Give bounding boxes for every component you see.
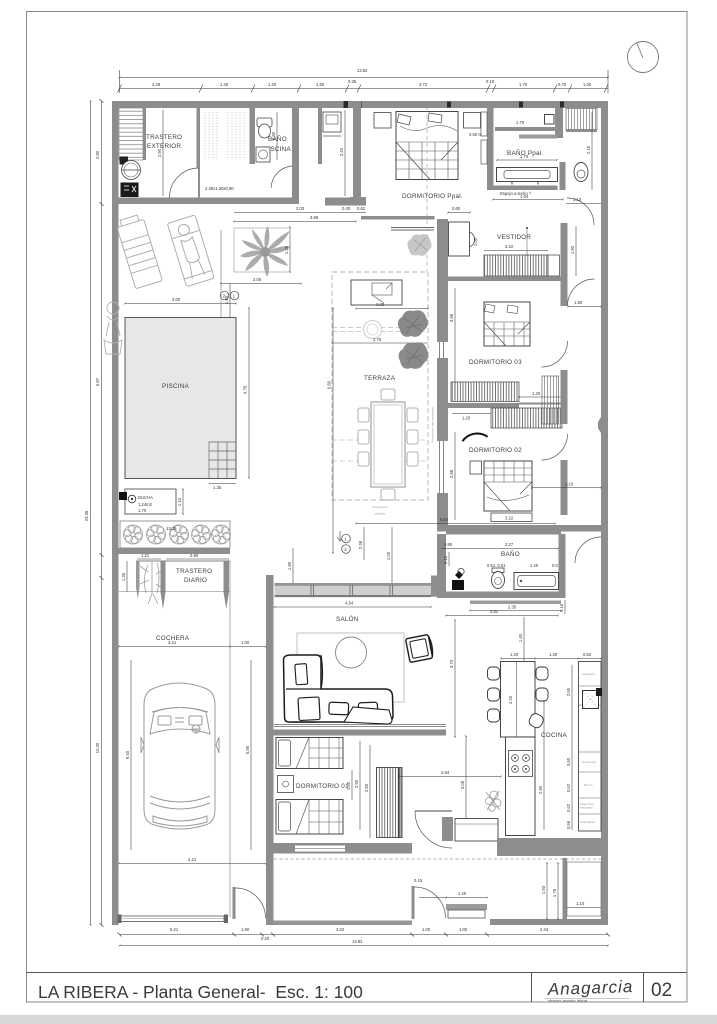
- svg-text:1.20: 1.20: [530, 563, 539, 568]
- svg-text:0.12: 0.12: [443, 555, 448, 564]
- svg-text:2.90: 2.90: [95, 150, 100, 159]
- svg-text:1.70: 1.70: [520, 154, 529, 159]
- svg-text:Despensa: Despensa: [582, 760, 596, 764]
- svg-text:BAÑO: BAÑO: [501, 549, 520, 558]
- svg-text:1.20: 1.20: [458, 891, 467, 896]
- svg-text:1.40: 1.40: [220, 82, 229, 87]
- svg-text:13.92: 13.92: [352, 939, 363, 944]
- svg-text:1.90: 1.90: [224, 295, 229, 304]
- svg-text:2.94: 2.94: [441, 770, 450, 775]
- svg-text:2.88: 2.88: [449, 469, 454, 478]
- svg-text:1.00: 1.00: [459, 927, 468, 932]
- svg-text:0,56: 0,56: [566, 820, 571, 829]
- svg-text:1.40: 1.40: [518, 633, 523, 642]
- svg-text:DUCHA: DUCHA: [138, 495, 153, 500]
- svg-text:integrado: integrado: [580, 806, 593, 810]
- svg-text:1.90: 1.90: [241, 927, 250, 932]
- svg-text:2.40: 2.40: [339, 147, 344, 156]
- svg-text:1.80: 1.80: [574, 300, 583, 305]
- svg-text:0.70: 0.70: [558, 82, 567, 87]
- svg-text:1.90: 1.90: [570, 245, 575, 254]
- svg-text:COCINA: COCINA: [541, 732, 568, 739]
- svg-text:1.35: 1.35: [213, 485, 222, 490]
- svg-text:6.87: 6.87: [95, 377, 100, 386]
- svg-text:SALÓN: SALÓN: [336, 614, 359, 623]
- svg-text:5.21: 5.21: [170, 927, 179, 932]
- svg-text:4,54: 4,54: [345, 601, 354, 606]
- svg-text:2.05: 2.05: [253, 277, 262, 282]
- svg-text:DORMITORIO 01: DORMITORIO 01: [296, 783, 349, 790]
- svg-text:Proyección: Proyección: [372, 505, 388, 509]
- svg-text:2.29: 2.29: [152, 82, 161, 87]
- svg-text:interiorismo decoración refo: interiorismo decoración reformas: [548, 998, 588, 1002]
- svg-text:pérgola: pérgola: [375, 512, 386, 516]
- svg-text:1.20: 1.20: [532, 391, 541, 396]
- svg-text:1.20: 1.20: [462, 416, 471, 421]
- svg-text:EXTERIOR: EXTERIOR: [147, 143, 181, 150]
- svg-text:3.22: 3.22: [505, 516, 514, 521]
- svg-text:0,62: 0,62: [583, 652, 592, 657]
- svg-text:3,82: 3,82: [490, 609, 499, 614]
- svg-text:1.50: 1.50: [316, 82, 325, 87]
- svg-text:5,95: 5,95: [245, 745, 250, 754]
- svg-text:3,21: 3,21: [168, 640, 177, 645]
- svg-text:6.80: 6.80: [327, 380, 332, 389]
- svg-text:1.90: 1.90: [287, 561, 292, 570]
- svg-text:1.20: 1.20: [268, 82, 277, 87]
- svg-text:1.25: 1.25: [284, 245, 289, 254]
- svg-text:23,39: 23,39: [84, 510, 89, 521]
- svg-text:0,62: 0,62: [566, 803, 571, 812]
- svg-text:3.72: 3.72: [419, 82, 428, 87]
- svg-text:1.10: 1.10: [177, 497, 182, 506]
- svg-text:4.02: 4.02: [336, 927, 345, 932]
- svg-text:0,60: 0,60: [566, 757, 571, 766]
- svg-text:0.35: 0.35: [348, 79, 357, 84]
- svg-text:2.90: 2.90: [538, 785, 543, 794]
- svg-text:LA RIBERA - Planta General- E: LA RIBERA - Planta General- Esc. 1: 100: [38, 982, 363, 1002]
- svg-text:2.20: 2.20: [508, 695, 513, 704]
- svg-text:fregadero: fregadero: [582, 672, 596, 676]
- svg-text:1.10: 1.10: [565, 482, 574, 487]
- svg-text:9,40: 9,40: [125, 750, 130, 759]
- svg-text:02: 02: [651, 980, 672, 1001]
- svg-text:3.22: 3.22: [505, 244, 514, 249]
- svg-text:0.10: 0.10: [486, 79, 495, 84]
- svg-text:2.80: 2.80: [364, 783, 369, 792]
- svg-text:DORMITORIO 03: DORMITORIO 03: [469, 359, 522, 366]
- svg-text:3.08: 3.08: [460, 780, 465, 789]
- svg-text:1.10: 1.10: [573, 197, 582, 202]
- svg-text:2.35: 2.35: [508, 605, 517, 610]
- svg-text:1.00: 1.00: [241, 640, 250, 645]
- svg-text:0.15: 0.15: [559, 603, 564, 612]
- svg-text:1.00: 1.00: [473, 237, 478, 246]
- svg-text:0.40: 0.40: [342, 206, 351, 211]
- svg-text:0.60: 0.60: [452, 206, 461, 211]
- svg-text:1.35: 1.35: [121, 572, 126, 581]
- svg-text:1.93: 1.93: [541, 885, 546, 894]
- svg-text:2.75: 2.75: [373, 337, 382, 342]
- svg-text:1.70: 1.70: [138, 508, 147, 513]
- svg-text:3.00: 3.00: [376, 302, 385, 307]
- svg-text:1.00: 1.00: [583, 82, 592, 87]
- svg-text:1.30: 1.30: [549, 652, 558, 657]
- svg-text:1.78: 1.78: [552, 888, 557, 897]
- svg-text:Anagarcia: Anagarcia: [546, 977, 633, 999]
- svg-text:0.20: 0.20: [261, 936, 270, 941]
- svg-text:2.90: 2.90: [157, 148, 162, 157]
- svg-text:2.90: 2.90: [190, 553, 199, 558]
- svg-text:TRASTERO: TRASTERO: [146, 134, 182, 141]
- svg-text:2.27: 2.27: [505, 542, 514, 547]
- svg-text:TRASTERO: TRASTERO: [176, 568, 212, 575]
- svg-text:1.94: 1.94: [520, 194, 529, 199]
- svg-text:2.38: 2.38: [358, 540, 363, 549]
- svg-text:1.70: 1.70: [516, 120, 525, 125]
- svg-text:1.20: 1.20: [510, 652, 519, 657]
- svg-text:DORMITORIO 02: DORMITORIO 02: [469, 447, 522, 454]
- svg-text:lavavajillas: lavavajillas: [580, 820, 595, 824]
- svg-text:1.00: 1.00: [422, 927, 431, 932]
- svg-text:2.15: 2.15: [586, 145, 591, 154]
- svg-text:3.70: 3.70: [449, 659, 454, 668]
- svg-text:PISCINA: PISCINA: [162, 383, 189, 390]
- svg-text:5,64: 5,64: [440, 517, 449, 522]
- svg-text:0.51 0.51: 0.51 0.51: [487, 563, 506, 568]
- svg-text:2.44: 2.44: [540, 927, 549, 932]
- svg-text:TERRAZA: TERRAZA: [364, 375, 396, 382]
- svg-text:0.0: 0.0: [552, 563, 558, 568]
- svg-text:3.98: 3.98: [449, 313, 454, 322]
- svg-text:1.70: 1.70: [519, 82, 528, 87]
- svg-text:2.30x1.30x0.90: 2.30x1.30x0.90: [205, 186, 234, 191]
- svg-text:Horno: Horno: [584, 783, 593, 787]
- svg-text:4.78: 4.78: [243, 385, 248, 394]
- svg-text:0.80: 0.80: [444, 542, 453, 547]
- svg-text:1.21: 1.21: [141, 553, 150, 558]
- svg-text:10.00: 10.00: [95, 742, 100, 753]
- svg-text:0.90: 0.90: [271, 131, 276, 140]
- svg-text:0,62: 0,62: [566, 783, 571, 792]
- svg-text:DORMITORIO Ppal.: DORMITORIO Ppal.: [402, 193, 463, 200]
- svg-text:1.00: 1.00: [386, 551, 391, 560]
- svg-text:3.99: 3.99: [310, 215, 319, 220]
- svg-text:2.03: 2.03: [296, 206, 305, 211]
- svg-text:13.25: 13.25: [166, 526, 177, 531]
- svg-text:Proyección viga escalante: Proyección viga escalante: [431, 407, 435, 443]
- svg-text:VESTIDOR: VESTIDOR: [497, 234, 531, 241]
- svg-text:DIARIO: DIARIO: [184, 577, 207, 584]
- svg-text:0.15: 0.15: [414, 878, 423, 883]
- svg-text:0.62: 0.62: [357, 206, 366, 211]
- svg-text:2.90: 2.90: [354, 779, 359, 788]
- svg-text:13.82: 13.82: [357, 68, 368, 73]
- svg-text:1,24m2: 1,24m2: [138, 502, 153, 507]
- svg-text:1.50: 1.50: [346, 781, 351, 790]
- svg-text:4,21: 4,21: [188, 857, 197, 862]
- svg-text:2.60: 2.60: [566, 687, 571, 696]
- svg-text:3.00: 3.00: [172, 297, 181, 302]
- svg-text:1.10: 1.10: [576, 901, 585, 906]
